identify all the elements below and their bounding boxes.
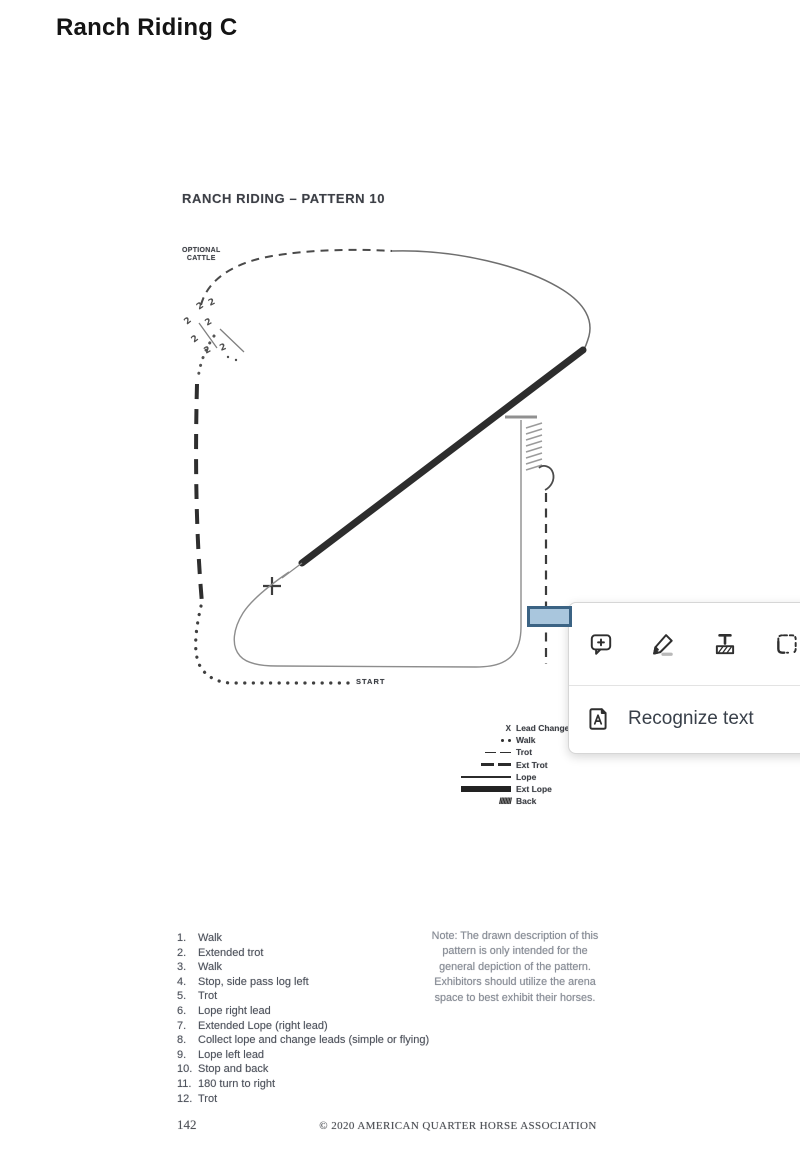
legend-row-ext-trot: Ext Trot <box>455 759 569 771</box>
popup-toolbar <box>569 603 800 685</box>
pattern-legend: X Lead Change Walk Trot Ext Trot Lope Ex… <box>455 722 569 807</box>
walk-dots-upper <box>198 336 214 379</box>
page-number: 142 <box>177 1117 197 1133</box>
crop-select-icon <box>774 631 800 657</box>
svg-text:2: 2 <box>183 316 194 328</box>
step-item: 5.Trot <box>177 989 429 1004</box>
ext-lope-diagonal <box>302 350 583 563</box>
walk-symbol <box>455 739 511 742</box>
legend-row-ext-lope: Ext Lope <box>455 783 569 795</box>
recognize-text-icon <box>585 706 611 732</box>
legend-label: Lead Change <box>516 723 569 733</box>
pattern-steps-list: 1.Walk 2.Extended trot 3.Walk 4.Stop, si… <box>177 931 429 1106</box>
legend-row-lope: Lope <box>455 771 569 783</box>
step-item: 9.Lope left lead <box>177 1048 429 1063</box>
svg-text:2: 2 <box>218 342 228 354</box>
annotation-highlight-rect[interactable] <box>527 606 572 627</box>
pattern-diagram: 2 2 2 2 2 2 2 <box>170 230 610 700</box>
svg-text:2: 2 <box>203 345 213 357</box>
legend-label: Ext Lope <box>516 784 552 794</box>
pdf-viewer-page: Ranch Riding C RANCH RIDING – PATTERN 10 <box>0 0 800 1150</box>
legend-label: Trot <box>516 747 532 757</box>
legend-row-walk: Walk <box>455 734 569 746</box>
diagonal-connector <box>282 563 302 578</box>
pattern-note: Note: The drawn description of this patt… <box>415 929 615 1006</box>
legend-row-trot: Trot <box>455 746 569 758</box>
walk-dots-bottom <box>196 606 353 683</box>
top-arc-solid <box>392 251 590 351</box>
copyright-line: © 2020 AMERICAN QUARTER HORSE ASSOCIATIO… <box>308 1120 608 1132</box>
pen-icon <box>650 631 676 657</box>
page-title: Ranch Riding C <box>56 14 237 42</box>
step-item: 3.Walk <box>177 960 429 975</box>
step-item: 4.Stop, side pass log left <box>177 975 429 990</box>
top-arc-dashed <box>201 250 392 305</box>
step-item: 8.Collect lope and change leads (simple … <box>177 1033 429 1048</box>
svg-text:2: 2 <box>190 334 201 346</box>
back-symbol: //////// <box>455 796 511 806</box>
step-item: 12.Trot <box>177 1092 429 1107</box>
back-hatch <box>526 423 542 470</box>
pattern-heading: RANCH RIDING – PATTERN 10 <box>182 191 385 206</box>
step-item: 10.Stop and back <box>177 1062 429 1077</box>
highlighter-icon <box>712 631 738 657</box>
step-item: 7.Extended Lope (right lead) <box>177 1019 429 1034</box>
snapshot-select-button[interactable] <box>771 628 800 660</box>
lope-symbol <box>455 776 511 779</box>
svg-text:2: 2 <box>195 301 206 313</box>
draw-pen-button[interactable] <box>647 628 679 660</box>
annotation-context-popup: Recognize text <box>568 602 800 754</box>
optional-cattle-label: OPTIONAL CATTLE <box>182 247 221 263</box>
step-item: 11.180 turn to right <box>177 1077 429 1092</box>
step-item: 6.Lope right lead <box>177 1004 429 1019</box>
legend-label: Back <box>516 796 536 806</box>
add-comment-button[interactable] <box>585 628 617 660</box>
svg-text:2: 2 <box>204 317 214 329</box>
ext-trot-symbol <box>455 763 511 767</box>
recognize-text-menu-item[interactable]: Recognize text <box>569 686 800 752</box>
legend-label: Ext Trot <box>516 760 548 770</box>
legend-label: Walk <box>516 735 536 745</box>
legend-label: Lope <box>516 772 536 782</box>
lead-change-symbol: X <box>455 724 511 733</box>
comment-plus-icon <box>588 631 614 657</box>
recognize-text-label: Recognize text <box>628 708 754 730</box>
highlight-text-button[interactable] <box>709 628 741 660</box>
turn-hook <box>539 466 554 490</box>
svg-text:2: 2 <box>207 297 217 309</box>
legend-row-lead-change: X Lead Change <box>455 722 569 734</box>
lope-path <box>234 420 521 667</box>
ext-lope-symbol <box>455 786 511 792</box>
trot-symbol <box>455 752 511 754</box>
step-item: 2.Extended trot <box>177 946 429 961</box>
cattle-glyphs: 2 2 2 2 2 2 2 <box>183 297 238 361</box>
start-label: START <box>356 677 385 686</box>
legend-row-back: //////// Back <box>455 795 569 807</box>
step-item: 1.Walk <box>177 931 429 946</box>
ext-trot-left <box>196 384 202 603</box>
